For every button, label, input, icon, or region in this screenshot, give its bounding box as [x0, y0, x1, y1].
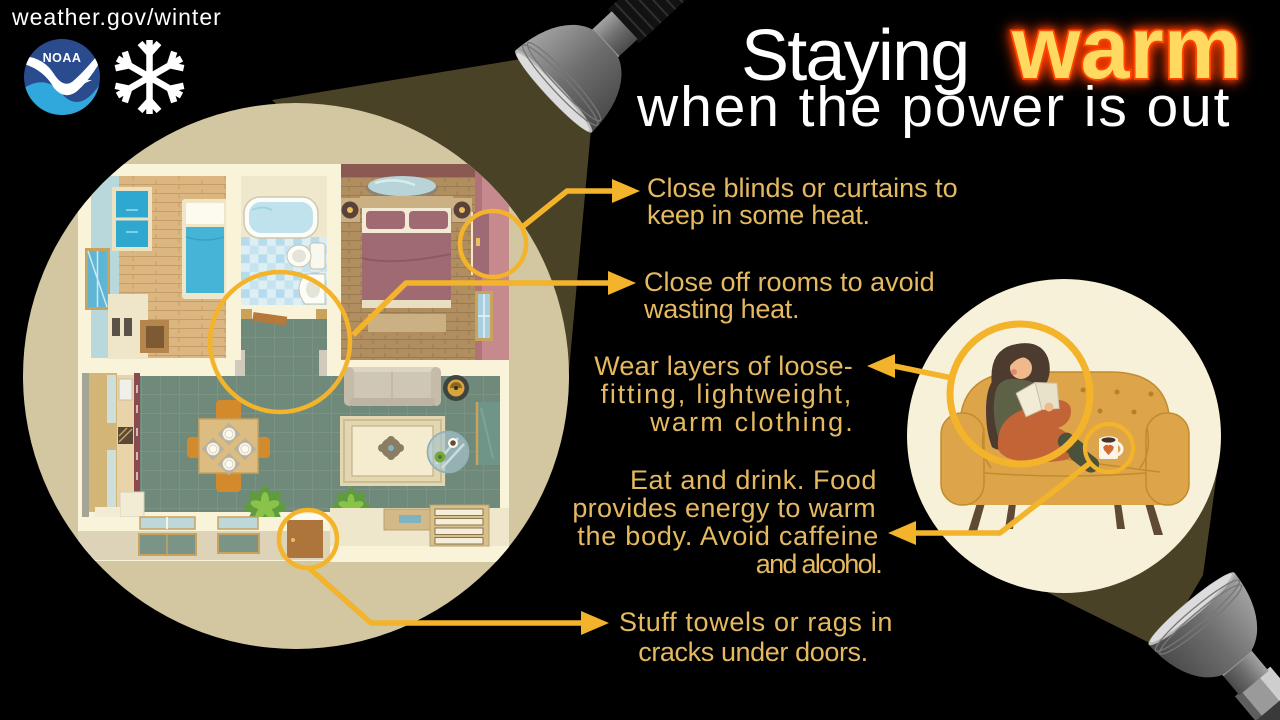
svg-text:and alcohol.: and alcohol. [756, 549, 881, 579]
svg-text:warm clothing.: warm clothing. [649, 407, 855, 437]
svg-text:keep in some heat.: keep in some heat. [647, 200, 870, 230]
svg-text:provides energy to warm: provides energy to warm [572, 493, 876, 523]
svg-text:Stuff towels or rags in: Stuff towels or rags in [619, 607, 893, 637]
svg-text:Close off rooms to avoid: Close off rooms to avoid [644, 267, 935, 297]
svg-text:Close blinds or curtains to: Close blinds or curtains to [647, 173, 958, 203]
svg-text:the body. Avoid caffeine: the body. Avoid caffeine [577, 521, 879, 551]
svg-text:weather.gov/winter: weather.gov/winter [11, 4, 222, 30]
svg-text:when the power is out: when the power is out [636, 75, 1231, 139]
svg-text:Wear layers of loose-: Wear layers of loose- [594, 351, 853, 381]
svg-text:wasting heat.: wasting heat. [643, 294, 799, 324]
svg-text:NOAA: NOAA [43, 51, 82, 65]
svg-text:fitting, lightweight,: fitting, lightweight, [601, 379, 853, 409]
svg-text:cracks under doors.: cracks under doors. [638, 637, 868, 667]
svg-text:Eat and drink. Food: Eat and drink. Food [630, 465, 877, 495]
